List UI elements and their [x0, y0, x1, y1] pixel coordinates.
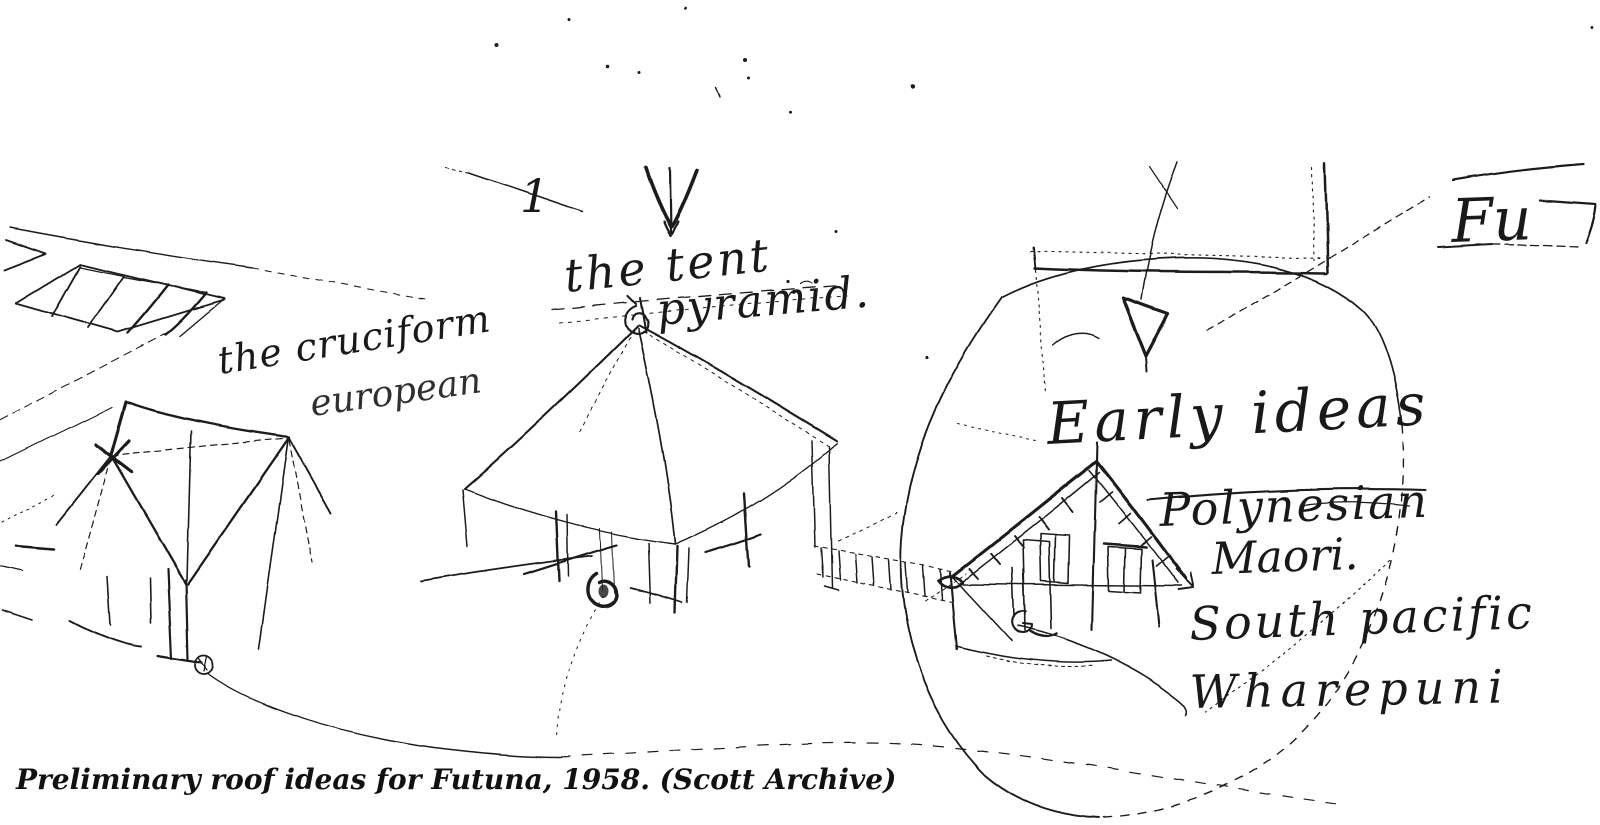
annotation-maori: Maori.	[1210, 529, 1360, 585]
ink-dot	[605, 64, 609, 68]
stroke	[1012, 612, 1032, 633]
stroke	[462, 441, 838, 603]
stroke	[1034, 247, 1036, 269]
door-window-lines	[1012, 534, 1141, 631]
scanned-sketch-page: 1 the tent pyramid. the cruciform europe…	[0, 0, 1600, 825]
stroke	[446, 167, 468, 172]
annotation-wharepuni: Wharepuni	[1189, 659, 1510, 719]
perspective-guide-lines	[0, 331, 170, 571]
ink-dot	[685, 7, 688, 10]
roof-hatching	[969, 498, 1073, 578]
bargeboard-arrow	[1176, 569, 1194, 590]
futuna-leader-line	[1206, 164, 1596, 330]
stroke	[716, 88, 720, 97]
stroke	[16, 546, 54, 549]
stroke	[158, 569, 202, 663]
wharepuni-house-sketch	[925, 442, 1194, 667]
ink-dot	[911, 85, 915, 89]
handwritten-annotations: 1 the tent pyramid. the cruciform europe…	[215, 169, 1536, 719]
stroke	[1053, 333, 1098, 345]
stroke	[464, 443, 837, 544]
v-arrow-icon	[646, 168, 697, 237]
stroke	[557, 597, 603, 737]
stroke	[464, 325, 837, 489]
stroke	[1142, 162, 1178, 300]
ink-dot	[1591, 27, 1594, 30]
stroke	[0, 331, 170, 420]
ink-dot	[748, 77, 751, 80]
stroke	[638, 328, 675, 544]
ink-dot	[639, 72, 642, 75]
annotation-european: european	[308, 360, 484, 425]
stroke	[10, 228, 252, 336]
stroke	[113, 402, 289, 584]
stroke	[199, 657, 207, 671]
stroke	[1206, 197, 1430, 330]
stroke	[821, 548, 942, 599]
figure-caption: Preliminary roof ideas for Futuna, 1958.…	[15, 763, 896, 796]
ink-dot	[925, 355, 928, 358]
stroke	[664, 168, 678, 237]
stroke	[2, 494, 56, 522]
stroke	[953, 577, 1112, 663]
stroke	[252, 268, 425, 299]
stroke	[421, 556, 682, 603]
annotation-early-ideas: Early ideas	[1044, 370, 1432, 458]
stroke	[1018, 626, 1187, 715]
annotation-south-pacific: South pacific	[1188, 585, 1535, 651]
down-arrow-icon	[1123, 162, 1178, 371]
arrowhead	[1123, 298, 1168, 356]
stroke	[207, 673, 560, 757]
ink-dot	[788, 110, 791, 113]
annotation-marker-1: 1	[520, 169, 549, 223]
stroke	[2, 431, 288, 649]
house-connector-curve	[1018, 626, 1187, 715]
ink-dot	[835, 230, 838, 233]
annotation-polynesian: Polynesian	[1157, 474, 1429, 537]
annotation-futuna-partial: Fu	[1449, 184, 1533, 257]
page-corner-rectangle	[1031, 164, 1328, 393]
stroke	[1146, 356, 1147, 371]
ink-dot	[743, 58, 747, 62]
marker-1-line	[446, 167, 582, 211]
tent-pyramid-sketch	[421, 325, 897, 737]
stroke	[901, 297, 1100, 818]
stroke	[1030, 544, 1146, 637]
ink-dot	[495, 43, 499, 47]
ink-dot	[569, 19, 572, 22]
stroke	[579, 330, 897, 541]
stroke	[556, 494, 749, 613]
stroke	[814, 546, 958, 603]
palisade-fence-sketch	[814, 424, 1038, 603]
sketch-canvas: 1 the tent pyramid. the cruciform europe…	[0, 0, 1600, 825]
stroke	[5, 240, 224, 332]
stroke	[1031, 168, 1324, 393]
cruciform-roof-sketch	[2, 402, 331, 674]
stroke	[57, 438, 331, 647]
stroke	[958, 424, 1038, 441]
